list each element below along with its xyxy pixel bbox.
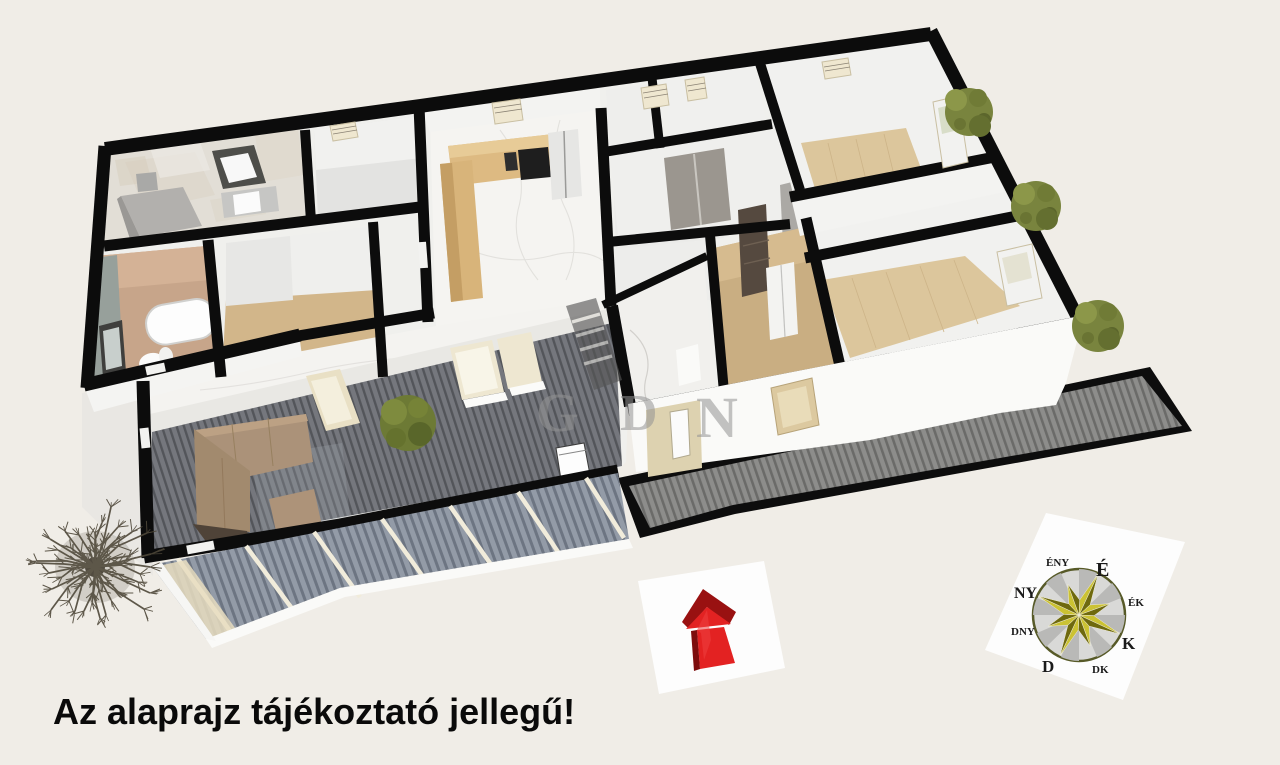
svg-text:G: G xyxy=(536,382,579,443)
svg-text:D: D xyxy=(1042,657,1054,676)
svg-text:D: D xyxy=(620,385,658,442)
svg-text:ÉNY: ÉNY xyxy=(1046,557,1069,569)
svg-text:NY: NY xyxy=(1014,585,1038,602)
svg-text:N: N xyxy=(696,385,738,450)
svg-text:K: K xyxy=(1122,634,1136,653)
svg-text:Az alaprajz tájékoztató jelleg: Az alaprajz tájékoztató jellegű! xyxy=(53,691,575,732)
svg-text:DNY: DNY xyxy=(1011,626,1035,638)
svg-text:DK: DK xyxy=(1092,664,1109,676)
svg-text:É: É xyxy=(1096,558,1109,581)
svg-text:ÉK: ÉK xyxy=(1128,597,1144,609)
